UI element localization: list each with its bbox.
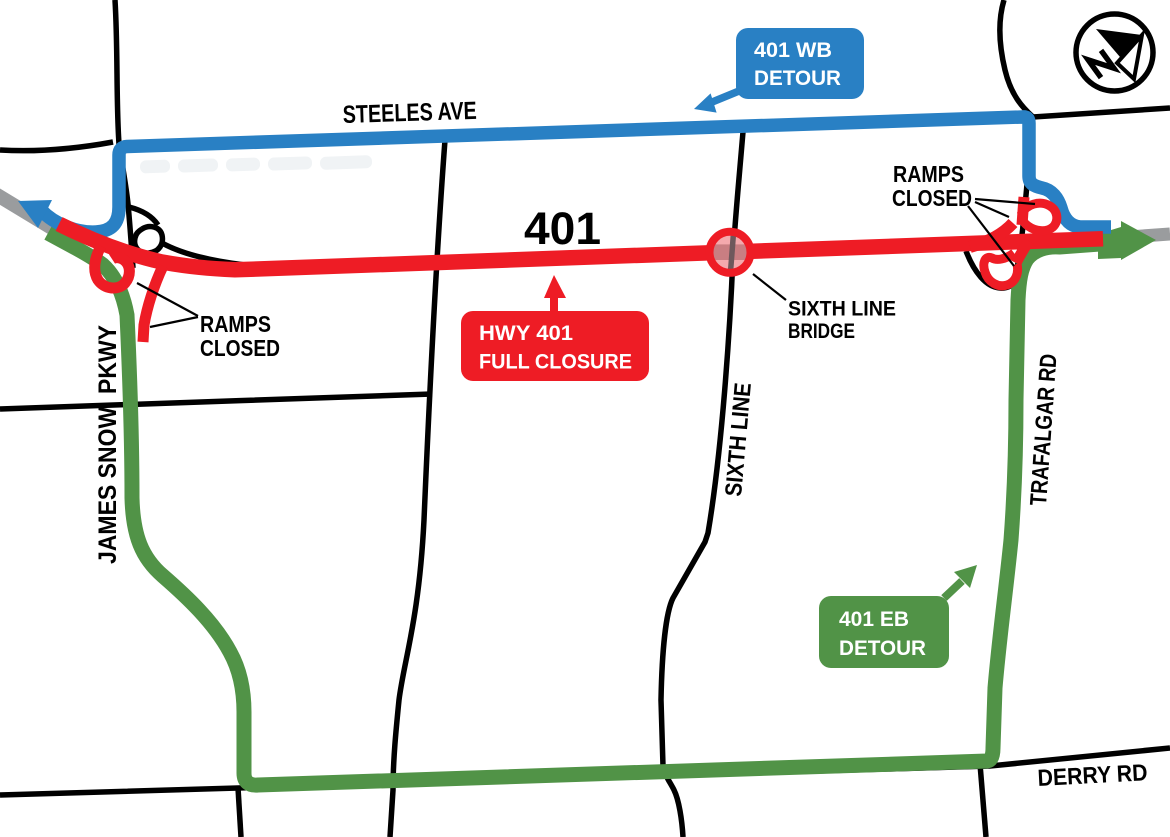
svg-text:401 EB: 401 EB <box>839 607 909 631</box>
svg-text:DETOUR: DETOUR <box>754 66 841 90</box>
svg-text:SIXTH LINE: SIXTH LINE <box>788 298 896 321</box>
svg-text:STEELES AVE: STEELES AVE <box>342 97 477 129</box>
svg-text:BRIDGE: BRIDGE <box>788 320 855 343</box>
svg-text:RAMPS: RAMPS <box>893 161 964 187</box>
svg-text:DETOUR: DETOUR <box>839 636 926 660</box>
svg-text:CLOSED: CLOSED <box>200 335 280 361</box>
svg-text:CLOSED: CLOSED <box>892 185 972 211</box>
svg-text:401: 401 <box>524 203 601 254</box>
svg-text:RAMPS: RAMPS <box>200 311 271 337</box>
svg-text:401 WB: 401 WB <box>754 38 832 62</box>
svg-text:FULL CLOSURE: FULL CLOSURE <box>479 350 632 374</box>
svg-text:HWY 401: HWY 401 <box>479 321 573 345</box>
svg-text:JAMES SNOW PKWY: JAMES SNOW PKWY <box>94 325 122 564</box>
